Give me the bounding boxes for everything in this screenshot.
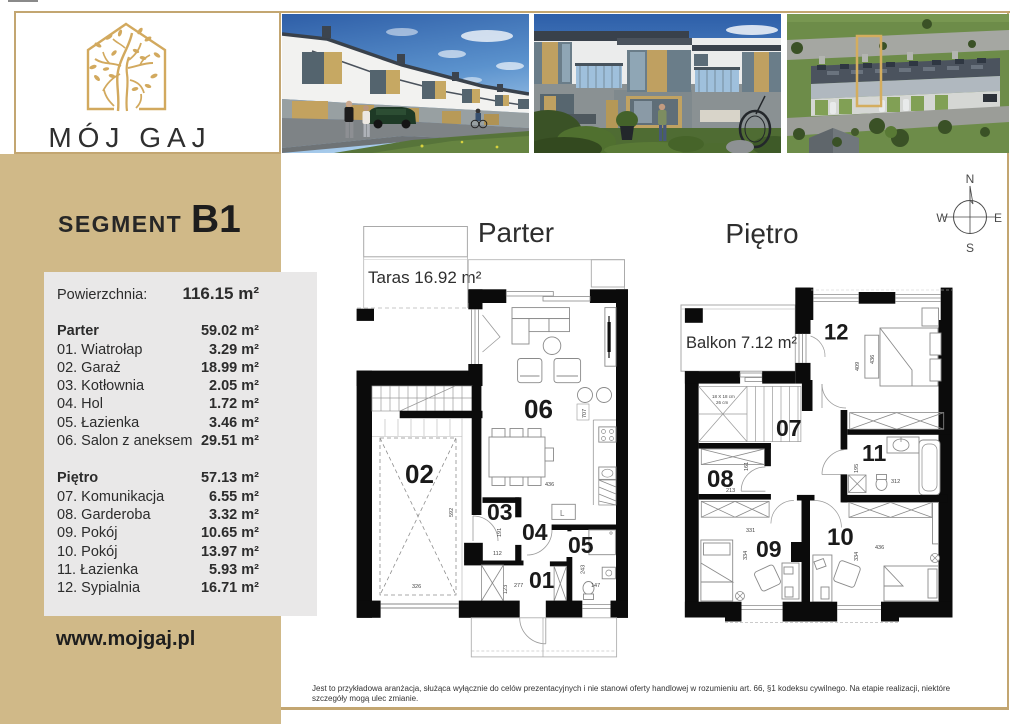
svg-text:L: L xyxy=(560,509,565,518)
svg-text:409: 409 xyxy=(855,362,861,371)
svg-text:09: 09 xyxy=(756,536,782,562)
svg-text:326: 326 xyxy=(412,584,421,590)
svg-text:11: 11 xyxy=(862,440,887,466)
svg-text:312: 312 xyxy=(891,479,900,485)
svg-text:S: S xyxy=(966,241,974,255)
svg-text:436: 436 xyxy=(870,355,876,364)
svg-text:26 cm: 26 cm xyxy=(716,400,729,405)
svg-text:123: 123 xyxy=(503,585,509,594)
svg-text:Balkon 7.12 m²: Balkon 7.12 m² xyxy=(686,334,797,352)
svg-text:436: 436 xyxy=(875,545,884,551)
svg-text:277: 277 xyxy=(514,583,523,589)
svg-text:334: 334 xyxy=(854,552,860,561)
svg-text:161: 161 xyxy=(744,462,750,471)
svg-text:01: 01 xyxy=(529,567,555,593)
svg-text:243: 243 xyxy=(581,565,587,574)
svg-text:07: 07 xyxy=(776,415,802,441)
svg-text:213: 213 xyxy=(726,488,735,494)
svg-text:334: 334 xyxy=(743,551,749,560)
svg-text:03: 03 xyxy=(487,499,513,525)
svg-text:707: 707 xyxy=(582,409,588,418)
svg-text:N: N xyxy=(966,172,975,186)
svg-text:436: 436 xyxy=(545,482,554,488)
svg-text:592: 592 xyxy=(449,508,455,517)
svg-text:191: 191 xyxy=(497,528,503,537)
svg-text:E: E xyxy=(994,211,1002,225)
svg-text:147: 147 xyxy=(591,583,600,589)
svg-text:18 X 18 cm: 18 X 18 cm xyxy=(712,394,735,399)
svg-text:06: 06 xyxy=(524,394,553,424)
svg-text:195: 195 xyxy=(854,464,860,473)
svg-text:W: W xyxy=(936,211,948,225)
svg-text:Taras 16.92 m²: Taras 16.92 m² xyxy=(368,268,482,287)
svg-text:05: 05 xyxy=(568,532,594,558)
svg-text:04: 04 xyxy=(522,519,548,545)
svg-text:112: 112 xyxy=(493,551,502,557)
svg-text:02: 02 xyxy=(405,459,434,489)
svg-text:12: 12 xyxy=(824,320,848,345)
svg-text:331: 331 xyxy=(746,528,755,534)
svg-text:10: 10 xyxy=(827,524,854,551)
